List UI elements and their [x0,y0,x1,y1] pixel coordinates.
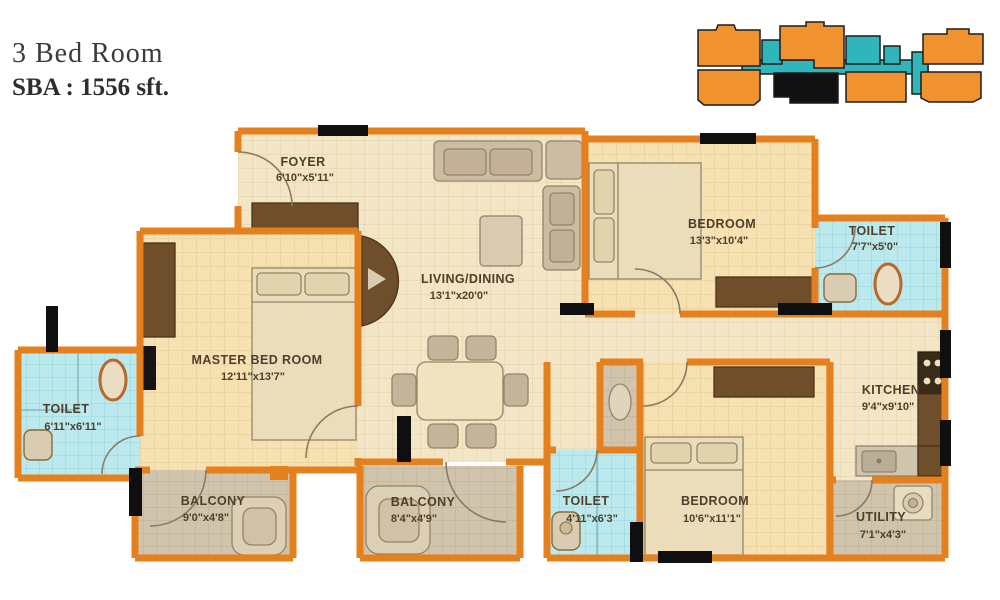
dims-toilet-left: 6'11"x6'11" [44,421,101,433]
dims-master: 12'11"x13'7" [221,371,285,383]
washbasin-icon [24,430,52,460]
label-living: LIVING/DINING [421,272,515,286]
dims-balcony-center: 8'4"x4'9" [391,513,437,525]
wc-icon [100,360,126,400]
key-plan-unit [921,72,981,102]
dims-balcony-left: 9'0"x4'8" [183,512,229,524]
washbasin-icon [824,274,856,302]
key-plan [698,22,983,105]
floorplan-drawing: FOYER 6'10"x5'11" LIVING/DINING 13'1"x20… [0,0,1000,600]
floor-corridor [585,314,830,362]
shaft-duct [609,384,631,420]
floorplan-page: 3 Bed Room SBA : 1556 sft. [0,0,1000,600]
key-plan-unit [698,70,760,105]
master-wardrobe [143,243,175,337]
label-foyer: FOYER [280,155,325,169]
foyer-wardrobe [252,203,358,231]
key-plan-highlighted-unit [774,73,838,103]
label-balcony-center: BALCONY [391,495,456,509]
bedroom-bottom-wardrobe [714,367,814,397]
key-plan-unit [923,29,983,64]
label-balcony-left: BALCONY [181,494,246,508]
label-toilet-top: TOILET [849,224,896,238]
wc-icon [875,264,901,304]
balcony-pillar [270,466,288,480]
label-bedroom-top: BEDROOM [688,217,756,231]
dims-toilet-bottom: 4'11"x6'3" [566,513,618,525]
label-kitchen: KITCHEN [862,383,920,397]
dims-living: 13'1"x20'0" [430,290,489,302]
floor-passage [547,362,600,450]
key-plan-unit [698,25,760,66]
bedroom-top-wardrobe [716,277,813,307]
dims-kitchen: 9'4"x9'10" [862,401,914,413]
key-plan-unit [846,72,906,102]
coffee-table [480,216,522,266]
dims-bedroom-bottom: 10'6"x11'1" [683,513,741,525]
dims-utility: 7'1"x4'3" [860,529,906,541]
dims-toilet-top: 7'7"x5'0" [852,241,898,253]
dining-table [417,362,503,420]
label-toilet-left: TOILET [43,402,90,416]
label-master: MASTER BED ROOM [192,353,323,367]
dims-bedroom-top: 13'3"x10'4" [690,235,749,247]
dims-foyer: 6'10"x5'11" [276,172,334,184]
bedroom-top-bed [589,163,701,279]
label-toilet-bottom: TOILET [563,494,610,508]
label-bedroom-bottom: BEDROOM [681,494,749,508]
label-utility: UTILITY [856,510,906,524]
